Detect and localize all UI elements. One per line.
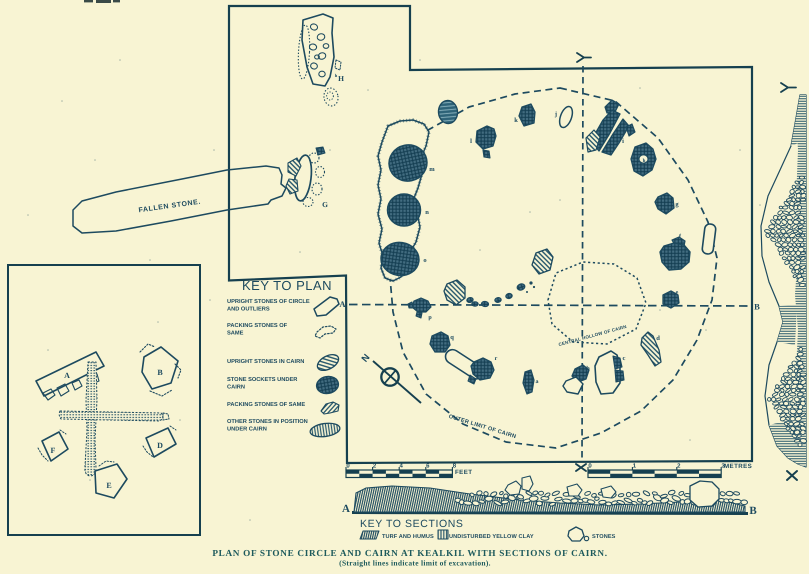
svg-text:METRES: METRES: [724, 463, 752, 470]
svg-text:KEY TO PLAN: KEY TO PLAN: [242, 278, 332, 293]
svg-text:SAME: SAME: [227, 330, 244, 336]
svg-text:PLAN OF STONE CIRCLE AND: PLAN OF STONE CIRCLE AND CAIRN AT KEALKI…: [212, 548, 607, 558]
svg-text:B: B: [749, 505, 757, 517]
svg-text:a: a: [536, 379, 539, 385]
svg-text:B: B: [754, 302, 760, 312]
svg-text:d: d: [656, 335, 660, 342]
svg-text:n: n: [425, 209, 429, 216]
svg-text:k: k: [514, 117, 518, 124]
svg-text:D: D: [157, 441, 163, 450]
svg-text:KEY TO SECTIONS: KEY TO SECTIONS: [360, 518, 464, 530]
svg-text:i: i: [622, 138, 624, 145]
svg-text:STONES: STONES: [592, 534, 616, 540]
svg-text:OTHER STONES IN POSITION: OTHER STONES IN POSITION: [227, 419, 308, 425]
svg-text:A: A: [339, 299, 346, 309]
svg-text:E: E: [106, 481, 111, 490]
svg-text:A: A: [64, 371, 70, 380]
svg-text:c: c: [623, 355, 626, 362]
svg-text:STONE SOCKETS UNDER: STONE SOCKETS UNDER: [227, 377, 297, 383]
svg-text:AND OUTLIERS: AND OUTLIERS: [227, 306, 270, 312]
svg-text:PACKING STONES OF: PACKING STONES OF: [227, 323, 288, 329]
svg-text:q: q: [450, 334, 454, 341]
svg-text:h: h: [643, 158, 646, 164]
svg-text:UNDER CAIRN: UNDER CAIRN: [227, 426, 267, 432]
svg-text:B: B: [157, 368, 163, 377]
svg-text:A: A: [342, 503, 350, 515]
svg-text:r: r: [495, 356, 498, 362]
svg-text:j: j: [554, 111, 557, 118]
svg-text:UPRIGHT STONES OF CIRCLE: UPRIGHT STONES OF CIRCLE: [227, 299, 310, 305]
svg-text:G: G: [322, 200, 328, 209]
svg-text:F: F: [51, 446, 56, 455]
svg-text:H: H: [338, 74, 344, 83]
svg-text:TURF AND HUMUS: TURF AND HUMUS: [382, 534, 434, 540]
svg-text:e: e: [676, 290, 679, 296]
svg-text:(Straight lines indicate limit: (Straight lines indicate limit of excava…: [339, 559, 491, 568]
svg-text:CAIRN: CAIRN: [227, 384, 245, 390]
svg-text:UNDISTURBED YELLOW CLAY: UNDISTURBED YELLOW CLAY: [449, 534, 534, 540]
svg-text:FEET: FEET: [455, 469, 472, 476]
svg-text:UPRIGHT STONES IN CAIRN: UPRIGHT STONES IN CAIRN: [227, 359, 304, 365]
svg-text:l: l: [470, 138, 472, 145]
svg-text:m: m: [429, 166, 435, 173]
svg-text:o: o: [423, 257, 426, 264]
svg-text:PACKING STONES OF SAME: PACKING STONES OF SAME: [227, 402, 305, 408]
